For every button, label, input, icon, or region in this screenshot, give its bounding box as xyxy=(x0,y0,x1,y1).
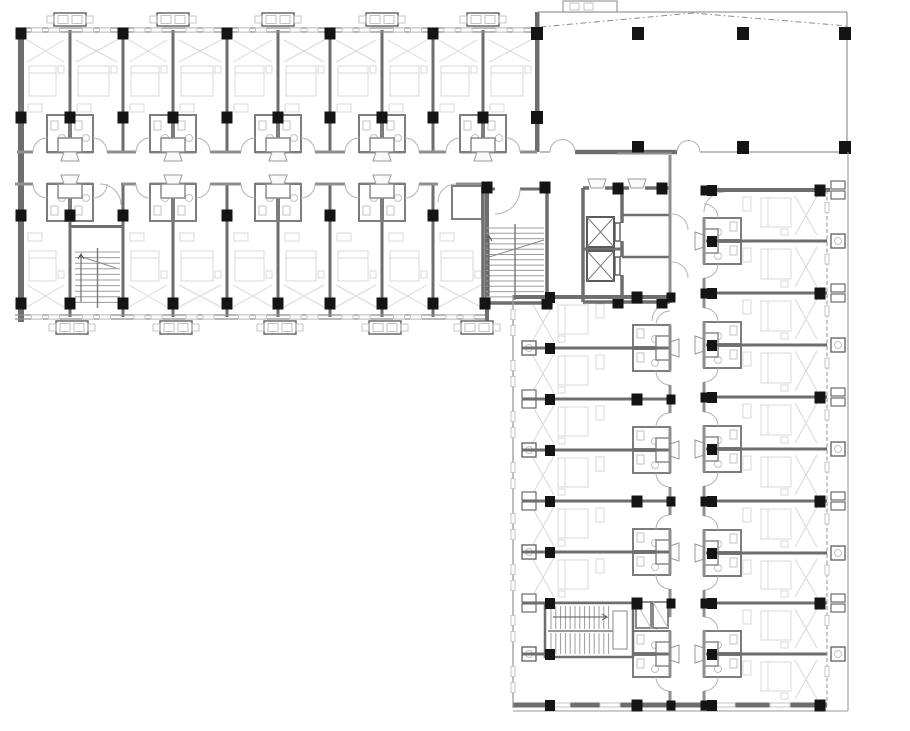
structural-column xyxy=(540,182,551,194)
bed xyxy=(29,251,56,281)
corridor-wall xyxy=(121,183,136,186)
window-tick xyxy=(49,315,60,319)
bed xyxy=(558,356,588,385)
structural-column xyxy=(222,298,233,310)
nightstand xyxy=(421,66,427,73)
ac-flange xyxy=(454,324,461,331)
ac-flange xyxy=(401,324,408,331)
party-wall xyxy=(329,184,332,317)
corridor-wall xyxy=(669,325,672,371)
entry-door-mark xyxy=(269,152,287,161)
window-tick xyxy=(186,315,197,319)
bed xyxy=(131,66,159,96)
entry-door-arc xyxy=(704,368,718,382)
entry-door-arc xyxy=(704,204,718,218)
entry-door-arc xyxy=(656,677,670,691)
party-wall xyxy=(329,30,332,152)
window-tick xyxy=(511,683,515,693)
entry-door-arc xyxy=(345,184,359,198)
window-tick xyxy=(511,377,515,387)
structural-column xyxy=(118,28,129,40)
stair-direction-arrow xyxy=(78,254,84,302)
structural-column xyxy=(632,598,643,610)
party-wall xyxy=(706,602,827,605)
desk xyxy=(130,233,144,241)
ac-unit xyxy=(831,284,845,292)
wardrobe-mark xyxy=(336,285,376,307)
desk xyxy=(743,300,751,314)
window-tick xyxy=(511,530,515,540)
nightstand xyxy=(266,271,272,278)
nightstand xyxy=(161,66,167,73)
entry-alcove xyxy=(266,138,290,152)
window-tick xyxy=(511,326,515,336)
wardrobe-mark xyxy=(439,40,477,62)
structural-column xyxy=(545,292,555,303)
window-tick xyxy=(256,28,267,32)
hall xyxy=(531,1,851,154)
desk xyxy=(743,248,751,262)
bed xyxy=(558,407,588,436)
window-tick xyxy=(186,28,197,32)
wardrobe-mark xyxy=(795,351,817,391)
desk xyxy=(596,406,604,420)
party-wall xyxy=(706,396,827,399)
window-tick xyxy=(32,28,43,32)
structural-column xyxy=(222,210,233,222)
wardrobe-mark xyxy=(532,405,554,444)
window-tick xyxy=(496,28,507,32)
wardrobe-mark xyxy=(532,507,554,546)
window-tick xyxy=(511,310,515,320)
structural-column xyxy=(657,183,668,195)
party-wall xyxy=(522,347,670,350)
nightstand xyxy=(781,489,788,495)
window-tick xyxy=(359,315,370,319)
desk xyxy=(389,233,403,241)
desk xyxy=(596,304,604,318)
desk xyxy=(234,233,248,241)
desk xyxy=(285,233,299,241)
party-wall xyxy=(706,448,827,451)
window-tick xyxy=(32,315,43,319)
structural-column xyxy=(632,292,643,304)
entry-door-mark xyxy=(588,179,606,188)
wardrobe-mark xyxy=(795,299,817,339)
window-tick xyxy=(394,28,405,32)
ac-flange xyxy=(499,16,506,23)
ac-flange xyxy=(86,16,93,23)
structural-column xyxy=(428,210,439,222)
window-tick xyxy=(511,361,515,371)
elevator xyxy=(587,217,620,247)
structural-column xyxy=(273,112,284,124)
wardrobe-mark xyxy=(795,196,817,235)
entry-door-arc xyxy=(656,413,670,427)
wardrobe-mark xyxy=(179,285,221,307)
ac-unit xyxy=(831,388,845,396)
desk xyxy=(234,104,248,112)
nightstand xyxy=(318,271,324,278)
entry-door-arc xyxy=(136,184,150,198)
structural-column xyxy=(707,340,717,351)
wardrobe-mark xyxy=(388,40,427,62)
entry-door-arc xyxy=(33,184,47,198)
party-wall xyxy=(706,292,827,295)
corridor-wall xyxy=(419,183,438,186)
party-wall xyxy=(432,184,435,317)
structural-column xyxy=(545,496,555,507)
ac-flange xyxy=(47,16,54,23)
nightstand xyxy=(58,66,64,73)
ac-unit xyxy=(831,492,845,500)
nightstand xyxy=(558,540,565,546)
window-tick xyxy=(511,479,515,489)
window-tick xyxy=(511,667,515,677)
ac-flange xyxy=(362,324,369,331)
entry-alcove xyxy=(370,138,394,152)
entry-door-arc xyxy=(100,184,121,205)
ac-unit xyxy=(831,294,845,302)
roof-ridge-dashed xyxy=(540,13,847,27)
desk xyxy=(130,104,144,112)
desk xyxy=(337,233,351,241)
entry-door-arc xyxy=(704,412,718,426)
wardrobe-mark xyxy=(795,559,817,597)
corridor-wall xyxy=(669,427,672,473)
corridor-wall xyxy=(669,631,672,677)
entry-alcove xyxy=(370,184,394,198)
window-tick xyxy=(411,28,422,32)
column-layer-top-wing xyxy=(16,28,489,310)
entry-door-arc xyxy=(656,515,670,529)
structural-column xyxy=(667,497,676,507)
window-tick xyxy=(825,616,829,626)
structural-column xyxy=(707,649,717,660)
structural-column xyxy=(632,27,644,40)
bed xyxy=(491,66,523,96)
party-wall xyxy=(522,449,670,452)
nightstand xyxy=(781,229,788,235)
window-tick xyxy=(290,315,301,319)
bed xyxy=(78,66,109,96)
ac-unit xyxy=(831,234,845,248)
ac-unit xyxy=(831,604,845,612)
ac-unit xyxy=(831,442,845,456)
ac-flange xyxy=(49,324,56,331)
window-tick xyxy=(239,28,250,32)
structural-column xyxy=(377,112,388,124)
window-tick xyxy=(511,616,515,626)
structural-column xyxy=(815,700,826,712)
corridor-wall xyxy=(315,183,345,186)
structural-column xyxy=(428,28,439,40)
desk xyxy=(77,104,91,112)
window-tick xyxy=(461,28,472,32)
corridor-wall xyxy=(210,151,241,154)
entry-door-arc xyxy=(704,472,718,486)
structural-column xyxy=(118,210,129,222)
ac-flange xyxy=(192,324,199,331)
nightstand xyxy=(471,66,477,73)
corridor-wall xyxy=(315,151,345,154)
structural-column xyxy=(531,27,543,40)
hall-bottom-line xyxy=(540,151,550,152)
entry-door-mark xyxy=(628,179,646,188)
desk xyxy=(285,104,299,112)
party-wall xyxy=(226,30,229,152)
ac-flange xyxy=(150,16,157,23)
bed xyxy=(338,66,368,96)
desk xyxy=(490,104,504,112)
nightstand xyxy=(370,66,376,73)
corridor-wall xyxy=(15,183,33,186)
corridor-wall xyxy=(520,151,537,154)
desk xyxy=(596,457,604,471)
window-tick xyxy=(825,410,829,420)
nightstand xyxy=(58,271,64,278)
corridor-wall xyxy=(419,151,446,154)
entry-door-mark xyxy=(164,175,182,184)
nightstand xyxy=(161,271,167,278)
nightstand xyxy=(781,693,788,699)
window-tick xyxy=(100,315,111,319)
nightstand xyxy=(525,66,531,73)
core xyxy=(480,153,689,310)
ac-condenser-unit xyxy=(366,13,398,26)
nightstand xyxy=(111,66,117,73)
window-tick xyxy=(151,28,162,32)
nightstand xyxy=(781,385,788,391)
structural-column xyxy=(701,701,710,711)
bed xyxy=(286,251,316,281)
entry-door-arc xyxy=(704,617,718,631)
structural-column xyxy=(480,298,491,310)
ac-condenser-unit xyxy=(56,321,88,334)
structural-column xyxy=(16,298,27,310)
desk xyxy=(180,104,194,112)
entry-door-arc xyxy=(301,138,315,152)
wardrobe-mark xyxy=(284,285,324,307)
structural-column xyxy=(428,112,439,124)
structural-column xyxy=(545,547,555,558)
hall-door-arc xyxy=(563,140,576,153)
wing-top-wall xyxy=(513,295,672,299)
window-tick xyxy=(134,28,145,32)
party-wall xyxy=(522,551,670,554)
ac-unit xyxy=(522,390,536,398)
nightstand xyxy=(370,271,376,278)
nightstand xyxy=(215,66,221,73)
entry-door-arc xyxy=(241,184,255,198)
bed xyxy=(390,251,419,281)
structural-column xyxy=(545,598,555,609)
party-wall xyxy=(226,184,229,317)
window-tick xyxy=(307,315,318,319)
structural-column xyxy=(701,599,710,609)
structural-column xyxy=(531,111,543,124)
structural-column xyxy=(16,112,27,124)
structural-column xyxy=(839,27,851,40)
elevator-door-slot xyxy=(615,257,620,275)
desk xyxy=(743,352,751,366)
bed xyxy=(441,66,469,96)
hall-door-arc xyxy=(677,141,689,153)
door-arc xyxy=(495,189,520,214)
ac-unit xyxy=(831,546,845,560)
bed xyxy=(286,66,316,96)
desk xyxy=(389,104,403,112)
window-tick xyxy=(83,28,94,32)
window-tick xyxy=(600,703,620,707)
hall-door-arc xyxy=(550,140,563,153)
structural-column xyxy=(815,496,826,508)
desk xyxy=(743,404,751,418)
wardrobe-mark xyxy=(795,455,817,495)
entry-door-arc xyxy=(93,138,107,152)
structural-column xyxy=(428,298,439,310)
wardrobe-mark xyxy=(532,456,554,495)
structural-column xyxy=(118,112,129,124)
ac-flange xyxy=(88,324,95,331)
structural-column xyxy=(16,28,27,40)
window-tick xyxy=(49,28,60,32)
structural-column xyxy=(815,598,826,610)
party-wall xyxy=(522,398,670,401)
window-tick xyxy=(411,315,422,319)
bed xyxy=(29,66,56,96)
structural-column xyxy=(65,210,76,222)
entry-door-mark xyxy=(269,175,287,184)
bed xyxy=(761,611,791,640)
entry-door-arc xyxy=(704,576,718,590)
desk xyxy=(596,355,604,369)
structural-column xyxy=(667,599,676,609)
entry-door-arc xyxy=(93,184,107,198)
entry-door-arc xyxy=(656,371,670,385)
core-wall xyxy=(583,186,589,190)
window-tick xyxy=(825,514,829,524)
structural-column xyxy=(707,444,717,455)
window-tick xyxy=(83,315,94,319)
structural-column xyxy=(701,497,710,507)
corridor-wall xyxy=(669,529,672,575)
entry-door-arc xyxy=(241,138,255,152)
structural-column xyxy=(815,288,826,300)
ac-unit xyxy=(831,191,845,199)
nightstand xyxy=(421,271,427,278)
floor-plan-drawing xyxy=(0,0,910,731)
entry-door-arc xyxy=(704,677,718,691)
door-arc xyxy=(672,262,688,278)
door-arc xyxy=(672,214,688,230)
structural-column xyxy=(632,496,643,508)
nightstand xyxy=(318,66,324,73)
entry-door-arc xyxy=(301,184,315,198)
bed xyxy=(558,458,588,487)
wardrobe-mark xyxy=(27,285,64,307)
bed xyxy=(761,509,791,539)
nightstand xyxy=(266,66,272,73)
bathroom xyxy=(452,186,482,219)
structural-column xyxy=(701,393,710,403)
wardrobe-mark xyxy=(388,285,427,307)
structural-column xyxy=(377,298,388,310)
window-tick xyxy=(825,254,829,264)
structural-column xyxy=(118,298,129,310)
ac-unit xyxy=(831,181,845,189)
structural-column xyxy=(545,445,555,456)
ac-flange xyxy=(493,324,500,331)
structural-column xyxy=(701,186,710,196)
bed xyxy=(181,251,213,281)
window-tick xyxy=(825,565,829,575)
corridor-wall xyxy=(703,631,706,677)
window-tick xyxy=(342,315,353,319)
bed xyxy=(761,249,791,279)
window-tick xyxy=(715,703,735,707)
window-tick xyxy=(825,358,829,368)
ac-flange xyxy=(294,16,301,23)
ac-unit xyxy=(831,502,845,510)
entry-alcove xyxy=(471,138,495,152)
window-tick xyxy=(446,315,457,319)
entry-door-arc xyxy=(704,516,718,530)
desk xyxy=(180,233,194,241)
bed xyxy=(131,251,159,281)
window-tick xyxy=(256,315,267,319)
entry-door-arc xyxy=(704,308,718,322)
structural-column xyxy=(707,236,717,247)
party-wall xyxy=(706,500,827,503)
desk xyxy=(743,508,751,522)
structural-column xyxy=(701,289,710,299)
corridor-wall xyxy=(669,155,672,303)
structural-column xyxy=(222,112,233,124)
entry-door-arc xyxy=(33,138,47,152)
structural-column xyxy=(737,27,749,40)
wardrobe-mark xyxy=(439,285,481,307)
nightstand xyxy=(558,336,565,342)
ac-unit xyxy=(831,338,845,352)
bed xyxy=(558,305,588,334)
entry-door-mark xyxy=(474,152,492,161)
entry-alcove xyxy=(58,184,82,198)
structural-column xyxy=(667,701,676,711)
hall-door-arc xyxy=(689,141,701,153)
floor-plan xyxy=(0,0,910,731)
structural-column xyxy=(222,28,233,40)
wardrobe-mark xyxy=(489,40,531,62)
structural-column xyxy=(737,141,749,154)
nightstand xyxy=(781,437,788,443)
ac-flange xyxy=(460,16,467,23)
ac-condenser-unit xyxy=(264,321,296,334)
ac-condenser-unit xyxy=(157,13,189,26)
ac-unit xyxy=(522,400,536,408)
wardrobe-mark xyxy=(179,40,221,62)
ac-flange xyxy=(296,324,303,331)
structural-column xyxy=(632,394,643,406)
desk xyxy=(743,661,751,675)
ac-flange xyxy=(189,16,196,23)
desk xyxy=(440,233,454,241)
ac-flange xyxy=(257,324,264,331)
window-tick xyxy=(511,565,515,575)
window-tick xyxy=(444,28,455,32)
ac-flange xyxy=(398,16,405,23)
corridor-wall xyxy=(703,218,706,264)
